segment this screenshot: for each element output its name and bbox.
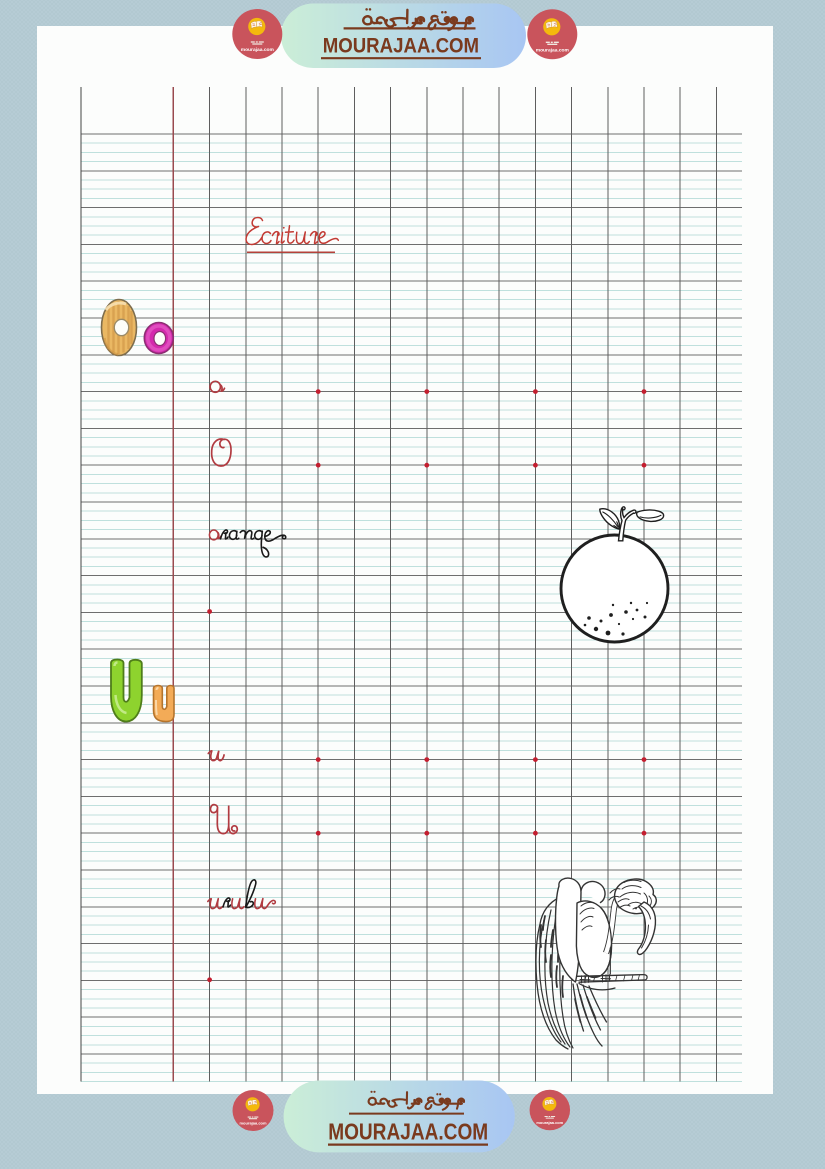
svg-text:MOURAJAA.COM: MOURAJAA.COM — [323, 35, 479, 58]
svg-text:MOURAJAA.COM: MOURAJAA.COM — [328, 1118, 488, 1144]
